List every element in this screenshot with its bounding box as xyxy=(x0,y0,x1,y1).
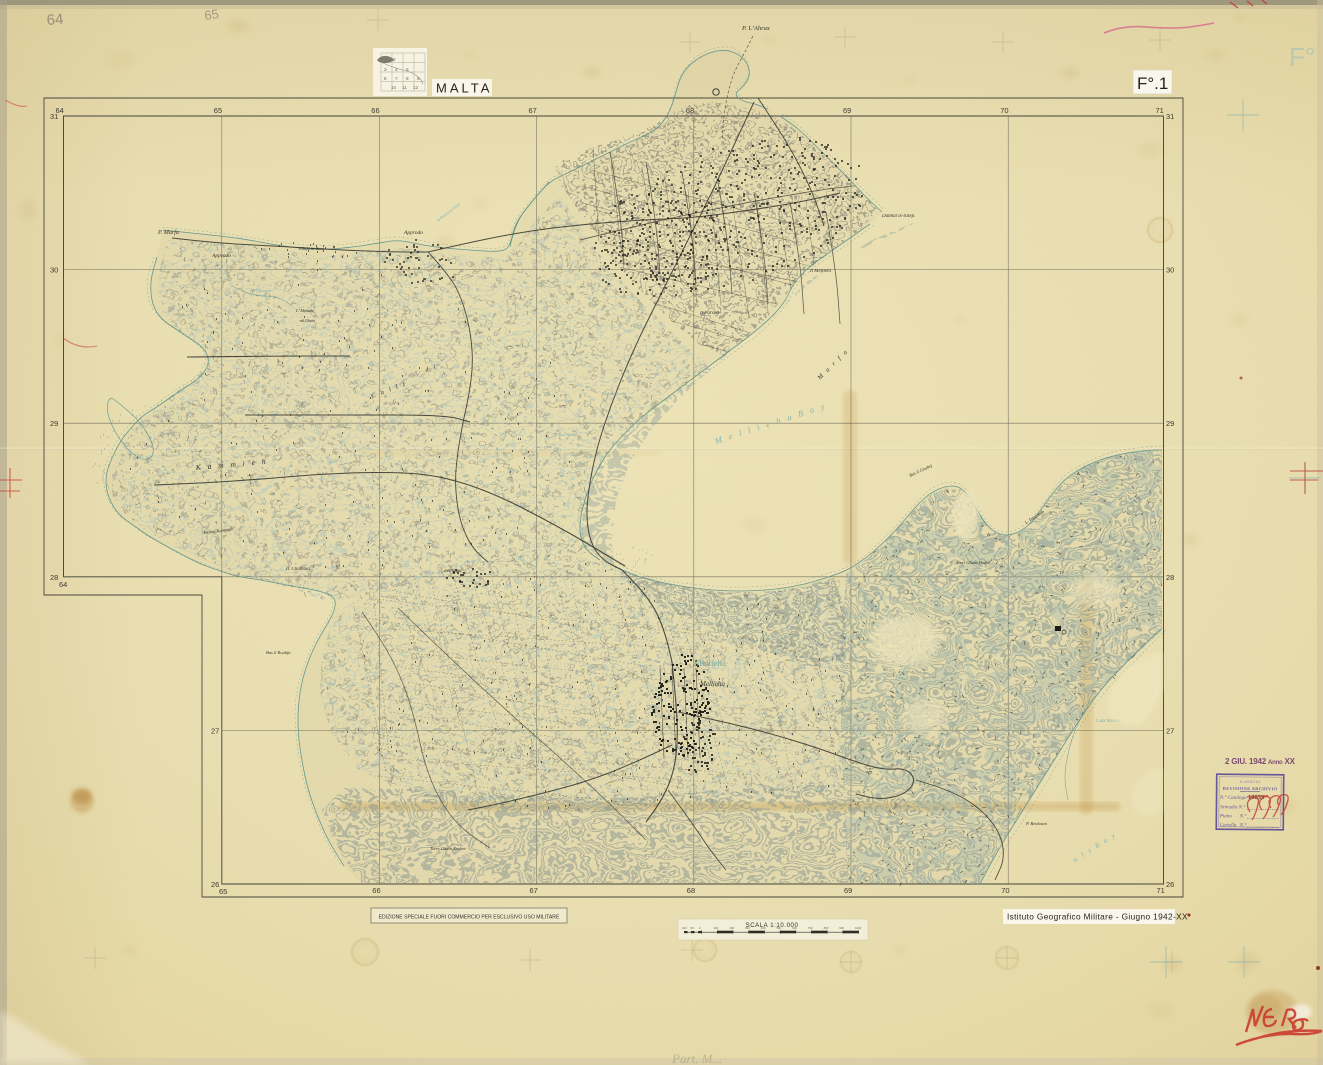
svg-text:4: 4 xyxy=(395,67,398,72)
svg-text:Cartella: Cartella xyxy=(1220,823,1237,828)
svg-text:65: 65 xyxy=(214,106,222,115)
svg-text:28: 28 xyxy=(50,573,58,582)
svg-text:F° 1: F° 1 xyxy=(1289,42,1323,72)
svg-text:P. Marfa: P. Marfa xyxy=(157,229,179,236)
svg-text:1000: 1000 xyxy=(855,926,862,930)
svg-text:Il Parsott: Il Parsott xyxy=(699,311,720,316)
svg-text:Part. M...: Part. M... xyxy=(671,1051,722,1065)
svg-text:Approdo: Approdo xyxy=(403,230,423,236)
svg-text:50: 50 xyxy=(691,926,695,930)
svg-text:11: 11 xyxy=(402,85,407,90)
svg-text:71: 71 xyxy=(1156,106,1164,115)
svg-text:It. Chamaia: It. Chamaia xyxy=(285,567,310,572)
svg-text:71: 71 xyxy=(1157,886,1165,895)
svg-text:Torre Ghain Znuber: Torre Ghain Znuber xyxy=(430,846,466,851)
svg-text:5: 5 xyxy=(406,67,409,72)
svg-text:26: 26 xyxy=(1166,880,1174,889)
svg-text:600: 600 xyxy=(792,926,797,930)
svg-text:Yel-Jingharka: Yel-Jingharka xyxy=(604,391,626,396)
svg-text:9: 9 xyxy=(417,76,420,81)
svg-text:3: 3 xyxy=(384,67,387,72)
svg-text:Ghar Bahet: Ghar Bahet xyxy=(556,432,577,437)
svg-text:Il Melliehì: Il Melliehì xyxy=(809,269,832,274)
svg-text:Istituto Geografico Militare -: Istituto Geografico Militare - Giugno 19… xyxy=(1007,912,1188,922)
svg-text:tal Ghain: tal Ghain xyxy=(300,318,315,323)
svg-text:27: 27 xyxy=(211,726,219,735)
svg-text:P. Benhawn: P. Benhawn xyxy=(1025,821,1048,826)
svg-text:Bas il Roahfa: Bas il Roahfa xyxy=(266,650,291,655)
svg-text:6: 6 xyxy=(384,76,387,81)
svg-text:2: 2 xyxy=(393,57,396,62)
svg-text:900: 900 xyxy=(839,926,844,930)
svg-text:Armadio N.°: Armadio N.° xyxy=(1219,805,1245,810)
svg-text:70: 70 xyxy=(1000,106,1008,115)
svg-text:69: 69 xyxy=(844,886,852,895)
svg-text:68: 68 xyxy=(687,886,695,895)
svg-text:700: 700 xyxy=(808,926,813,930)
svg-text:300: 300 xyxy=(745,926,750,930)
svg-text:Piano: Piano xyxy=(1219,814,1232,819)
svg-text:N.°: N.° xyxy=(1239,823,1247,828)
svg-text:SCALA 1:10.000: SCALA 1:10.000 xyxy=(746,923,799,929)
svg-text:500: 500 xyxy=(777,926,782,930)
svg-text:Torri Ghain Hadid: Torri Ghain Hadid xyxy=(956,560,991,565)
svg-text:31: 31 xyxy=(50,112,58,121)
svg-text:29: 29 xyxy=(1166,419,1174,428)
svg-text:Zeltlager: Zeltlager xyxy=(444,569,462,574)
svg-text:Villaja ta Bani: Villaja ta Bani xyxy=(298,246,325,251)
svg-text:66: 66 xyxy=(371,106,379,115)
svg-text:N.° Catalogo: N.° Catalogo xyxy=(1219,796,1247,801)
svg-text:29: 29 xyxy=(50,419,58,428)
svg-text:65: 65 xyxy=(219,887,227,896)
svg-text:7: 7 xyxy=(395,76,398,81)
svg-text:67: 67 xyxy=(530,886,538,895)
svg-text:30: 30 xyxy=(50,266,58,275)
svg-text:30: 30 xyxy=(1166,266,1174,275)
svg-text:2 GIU. 1942 Anno XX: 2 GIU. 1942 Anno XX xyxy=(1225,757,1296,766)
svg-text:69: 69 xyxy=(843,106,851,115)
svg-text:F°.1: F°.1 xyxy=(1137,74,1168,93)
svg-text:800: 800 xyxy=(824,926,829,930)
svg-text:REVISIONE ARCHIVIO: REVISIONE ARCHIVIO xyxy=(1223,786,1278,791)
svg-text:64: 64 xyxy=(46,11,64,29)
svg-text:67: 67 xyxy=(529,106,537,115)
svg-text:65: 65 xyxy=(203,6,219,23)
svg-text:8: 8 xyxy=(406,76,409,81)
svg-text:L’Abrash: L’Abrash xyxy=(295,308,314,313)
svg-text:200: 200 xyxy=(729,926,734,930)
svg-text:100: 100 xyxy=(714,926,719,930)
svg-text:Dabbat ix-Xilep.: Dabbat ix-Xilep. xyxy=(881,214,915,219)
svg-text:N.°: N.° xyxy=(1239,814,1247,819)
svg-text:66: 66 xyxy=(372,886,380,895)
svg-text:70: 70 xyxy=(1001,886,1009,895)
svg-text:MALTA: MALTA xyxy=(436,81,492,96)
svg-text:100: 100 xyxy=(682,926,687,930)
svg-text:10: 10 xyxy=(391,85,397,90)
svg-text:27: 27 xyxy=(1166,726,1174,735)
svg-text:Jl Chiausa: Jl Chiausa xyxy=(252,288,271,293)
svg-text:31: 31 xyxy=(1166,112,1174,121)
svg-text:12: 12 xyxy=(413,85,419,90)
svg-text:64: 64 xyxy=(59,580,67,589)
svg-text:28: 28 xyxy=(1166,573,1174,582)
svg-text:R. ISTITUTO: R. ISTITUTO xyxy=(1240,780,1260,784)
svg-text:Mellieha: Mellieha xyxy=(694,658,726,668)
svg-text:EDIZIONE SPECIALE FUORI COMMER: EDIZIONE SPECIALE FUORI COMMERCIO PER ES… xyxy=(379,914,560,920)
svg-text:Mellieha: Mellieha xyxy=(699,680,725,688)
svg-text:400: 400 xyxy=(761,926,766,930)
svg-text:P. L’Ahrax: P. L’Ahrax xyxy=(741,25,770,32)
svg-text:Approdo: Approdo xyxy=(211,253,231,259)
